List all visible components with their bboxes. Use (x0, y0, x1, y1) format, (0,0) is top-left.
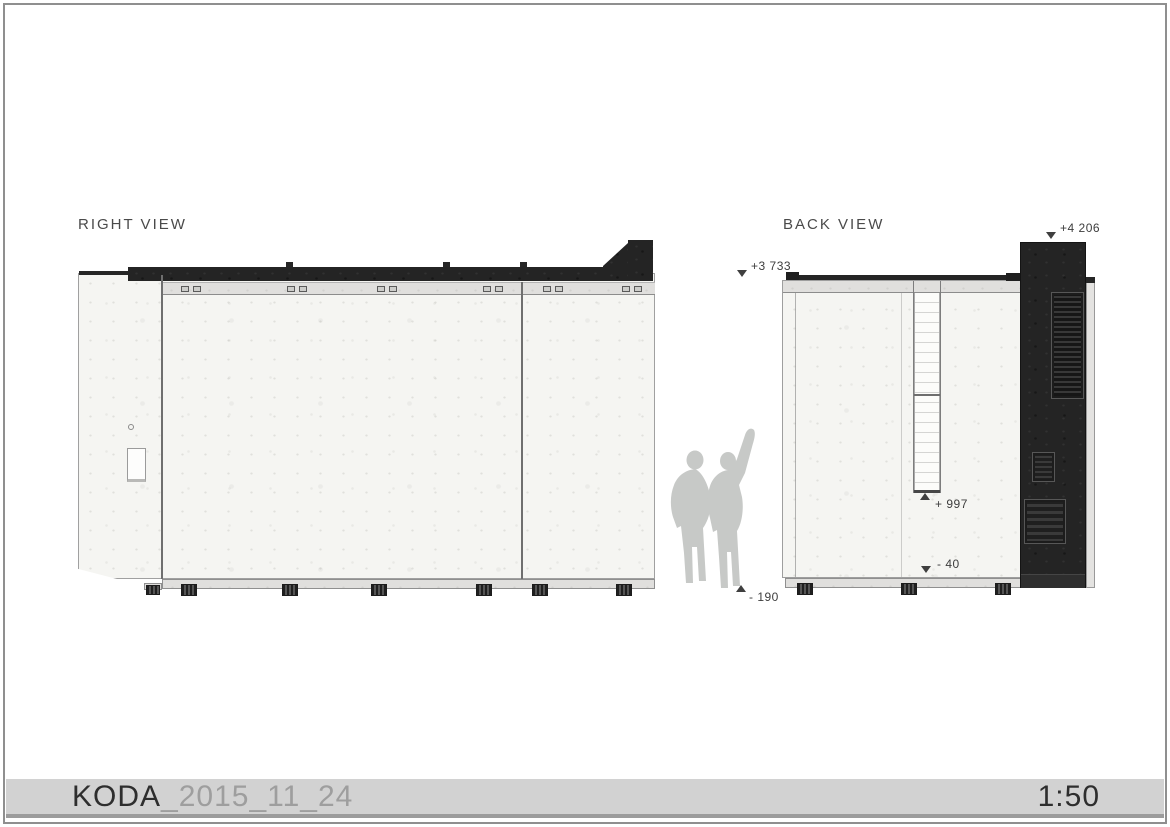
level-label-ground: - 190 (749, 590, 779, 604)
level-label-tower-top: +4 206 (1060, 221, 1100, 235)
title-block: KODA_2015_11_24 1:50 (6, 779, 1164, 818)
back-view-roof-cap (786, 272, 799, 280)
back-view-side-return (1086, 277, 1095, 588)
fascia-clips (543, 286, 563, 291)
right-view-wall (78, 273, 655, 579)
support-foot (901, 583, 917, 595)
fascia-clips (287, 286, 307, 291)
revision-date-suffix: _2015_11_24 (161, 780, 353, 813)
level-marker-down-icon (921, 566, 931, 573)
end-panel-peg (128, 424, 134, 430)
figure-left-head (687, 451, 704, 470)
support-foot (146, 585, 160, 595)
right-view-title: RIGHT VIEW (78, 216, 187, 233)
tower-vent-large (1024, 499, 1066, 544)
support-foot (371, 584, 387, 596)
figure-left-body (671, 469, 711, 583)
drawing-scale: 1:50 (1038, 780, 1100, 814)
back-view-roof-line (786, 275, 1020, 280)
right-view-roof-block (628, 240, 653, 281)
ladder-mid-rest (914, 394, 940, 396)
right-view-roof-band (128, 267, 603, 281)
panel-joint-line (521, 282, 523, 579)
support-foot (532, 584, 548, 596)
support-foot (476, 584, 492, 596)
end-panel-window (127, 448, 146, 482)
right-view-left-roof-cap (79, 271, 128, 275)
right-view-fascia (162, 282, 655, 295)
figure-right-body (708, 429, 755, 588)
ladder-rail (940, 281, 941, 493)
panel-joint-line (901, 293, 902, 577)
human-scale-figures (664, 425, 766, 597)
support-foot (995, 583, 1011, 595)
panel-joint-line (795, 293, 796, 577)
fascia-clips (622, 286, 642, 291)
level-marker-down-icon (1046, 232, 1056, 239)
support-foot (616, 584, 632, 596)
level-marker-up-icon (736, 585, 746, 592)
tower-vent-small (1032, 452, 1055, 482)
support-foot (181, 584, 197, 596)
drawing-sheet: RIGHT VIEW (0, 0, 1170, 827)
ladder-rail (913, 281, 914, 493)
tower-base-strip (1021, 574, 1085, 588)
level-label-back-roof: +3 733 (751, 259, 791, 273)
back-view-fascia (783, 281, 1020, 293)
fascia-clips (181, 286, 201, 291)
panel-joint-line (161, 275, 163, 579)
support-foot (797, 583, 813, 595)
sheet-title: KODA_2015_11_24 (72, 780, 353, 814)
side-return-roof-cap (1086, 277, 1095, 283)
fascia-clips (483, 286, 503, 291)
level-marker-up-icon (920, 493, 930, 500)
project-name: KODA (72, 780, 161, 813)
back-view-title: BACK VIEW (783, 216, 884, 233)
back-view-ladder (914, 293, 940, 493)
level-marker-down-icon (737, 270, 747, 277)
level-label-ladder-foot: + 997 (935, 497, 968, 511)
support-foot (282, 584, 298, 596)
back-view-roof-cap (1006, 273, 1020, 281)
fascia-clips (377, 286, 397, 291)
right-view-base-band (162, 579, 655, 589)
tower-louver-vent-top (1051, 292, 1084, 399)
level-label-base: - 40 (937, 557, 960, 571)
